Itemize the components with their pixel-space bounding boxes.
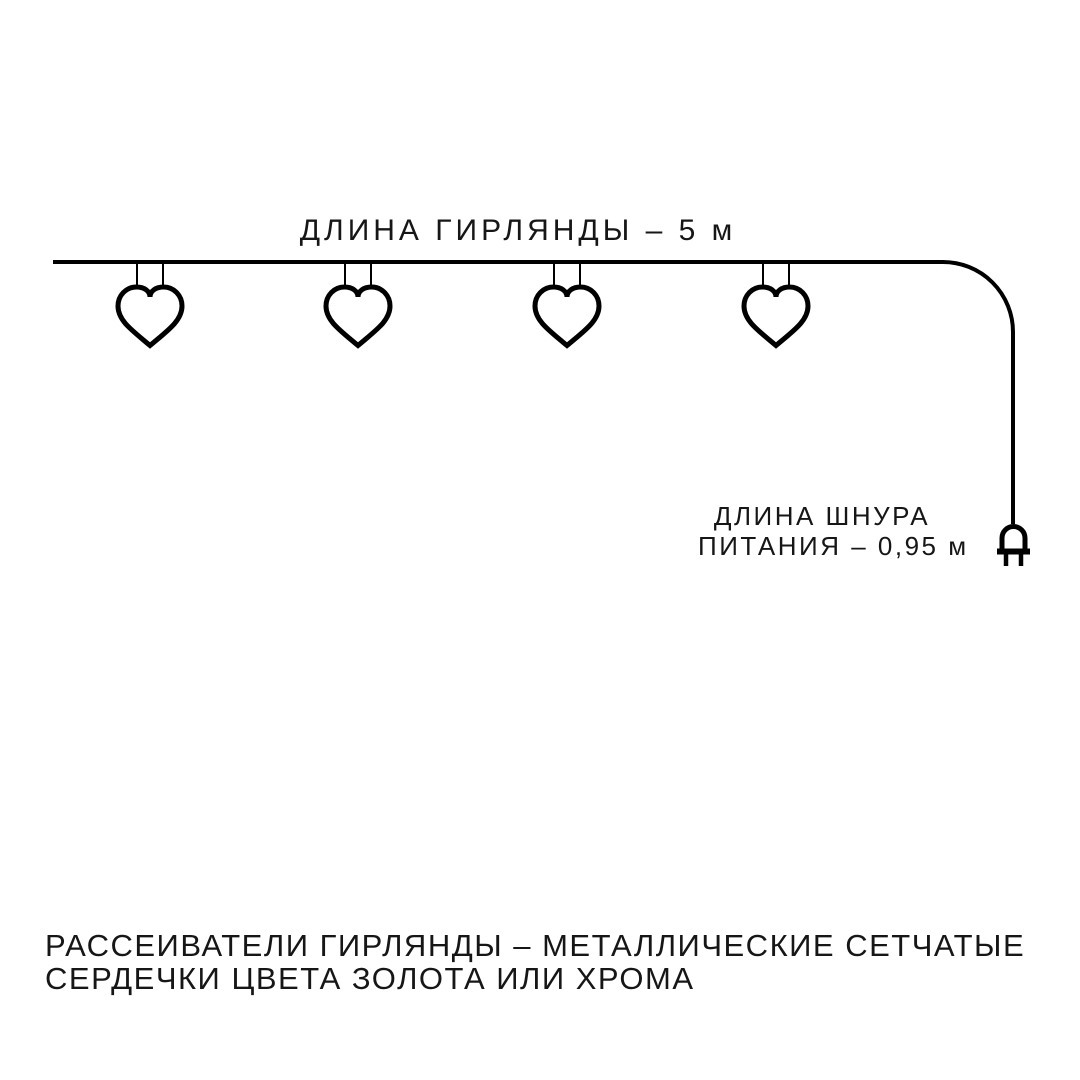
cord-length-label-line1: ДЛИНА ШНУРА [698, 501, 946, 531]
diffusers-description-line2: СЕРДЕЧКИ ЦВЕТА ЗОЛОТА ИЛИ ХРОМА [45, 962, 1035, 995]
heart-icon [326, 287, 390, 346]
heart-icon [744, 287, 808, 346]
cord-length-label-line2: ПИТАНИЯ – 0,95 м [698, 531, 946, 561]
heart-ornament [326, 260, 390, 346]
diffusers-description: РАССЕИВАТЕЛИ ГИРЛЯНДЫ – МЕТАЛЛИЧЕСКИЕ СЕ… [45, 929, 1035, 995]
heart-ornament [118, 260, 182, 346]
heart-icon [535, 287, 599, 346]
power-plug-icon [997, 527, 1030, 567]
plug-dome [1002, 527, 1025, 550]
cord-length-label: ДЛИНА ШНУРА ПИТАНИЯ – 0,95 м [698, 501, 946, 561]
heart-ornament [535, 260, 599, 346]
heart-icon [118, 287, 182, 346]
diffusers-description-line1: РАССЕИВАТЕЛИ ГИРЛЯНДЫ – МЕТАЛЛИЧЕСКИЕ СЕ… [45, 929, 1035, 962]
heart-ornament [744, 260, 808, 346]
garland-infographic: ДЛИНА ГИРЛЯНДЫ – 5 м [0, 0, 1080, 1080]
